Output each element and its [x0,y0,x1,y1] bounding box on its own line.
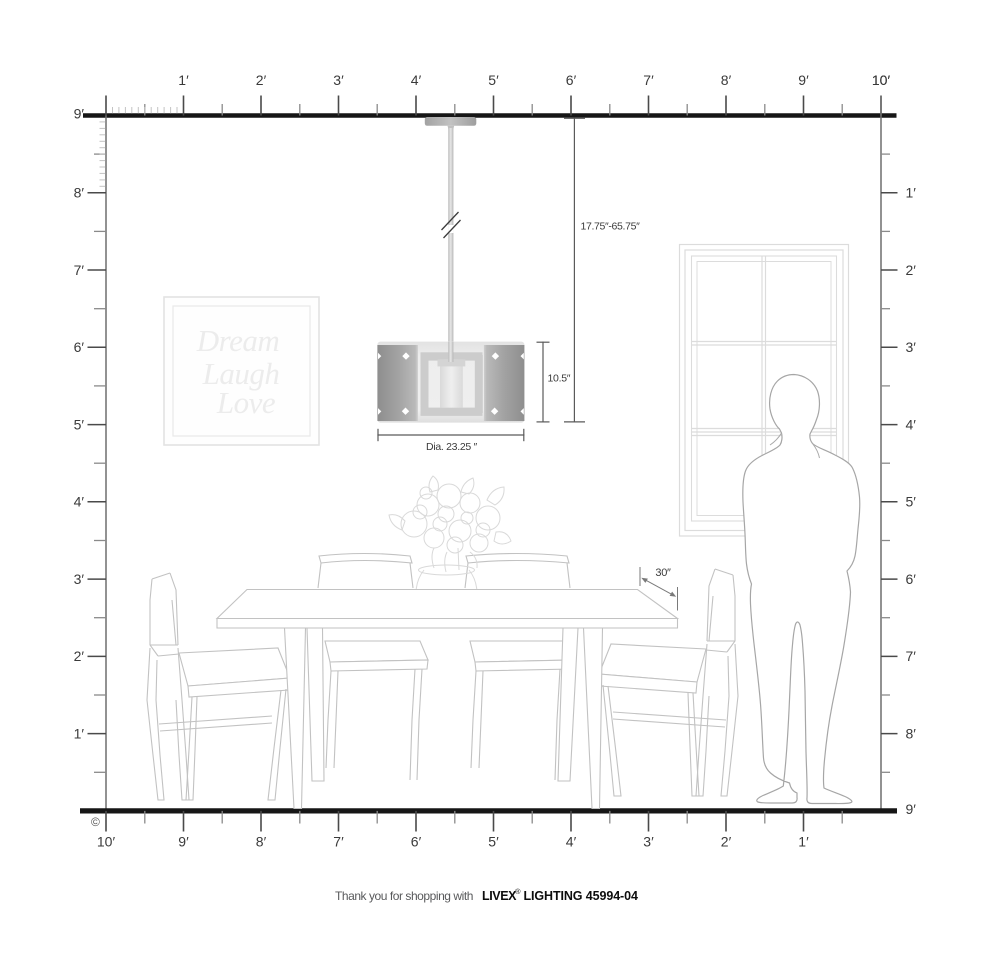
svg-text:1′: 1′ [178,72,189,88]
svg-text:Love: Love [216,385,276,420]
svg-text:2′: 2′ [256,72,267,88]
svg-text:9′: 9′ [906,801,917,817]
svg-text:9′: 9′ [74,106,85,122]
svg-text:5′: 5′ [488,834,499,850]
svg-text:2′: 2′ [721,834,732,850]
svg-text:1′: 1′ [74,725,85,741]
svg-text:30″: 30″ [655,567,671,579]
svg-text:8′: 8′ [721,72,732,88]
svg-text:6′: 6′ [74,339,85,355]
svg-text:3′: 3′ [333,72,344,88]
svg-text:4′: 4′ [906,416,917,432]
svg-text:LIVEX: LIVEX [482,889,517,903]
svg-text:8′: 8′ [256,834,267,850]
svg-text:LIGHTING 45994-04: LIGHTING 45994-04 [524,889,638,903]
svg-text:1′: 1′ [906,185,917,201]
svg-text:9′: 9′ [798,72,809,88]
svg-text:8′: 8′ [74,185,85,201]
svg-text:3′: 3′ [906,339,917,355]
svg-text:7′: 7′ [333,834,344,850]
svg-text:7′: 7′ [643,72,654,88]
svg-text:3′: 3′ [643,834,654,850]
svg-text:Dia. 23.25 ″: Dia. 23.25 ″ [426,441,477,453]
svg-text:4′: 4′ [566,834,577,850]
svg-text:2′: 2′ [906,262,917,278]
svg-text:3′: 3′ [74,571,85,587]
svg-text:5′: 5′ [906,494,917,510]
svg-text:17.75″-65.75″: 17.75″-65.75″ [581,221,641,233]
svg-text:7′: 7′ [906,648,917,664]
svg-text:®: ® [515,887,521,896]
svg-text:5′: 5′ [488,72,499,88]
svg-text:7′: 7′ [74,262,85,278]
svg-text:4′: 4′ [411,72,422,88]
svg-text:2′: 2′ [74,648,85,664]
svg-text:10.5″: 10.5″ [548,373,571,385]
svg-text:10′: 10′ [97,834,116,850]
svg-text:6′: 6′ [906,571,917,587]
svg-text:6′: 6′ [566,72,577,88]
svg-text:10′: 10′ [872,72,891,88]
svg-text:Dream: Dream [196,323,280,358]
svg-text:8′: 8′ [906,725,917,741]
svg-text:5′: 5′ [74,416,85,432]
svg-text:Thank you for shopping with: Thank you for shopping with [335,889,473,903]
svg-text:©: © [91,815,100,829]
svg-text:6′: 6′ [411,834,422,850]
svg-text:4′: 4′ [74,494,85,510]
svg-text:9′: 9′ [178,834,189,850]
svg-text:1′: 1′ [798,834,809,850]
